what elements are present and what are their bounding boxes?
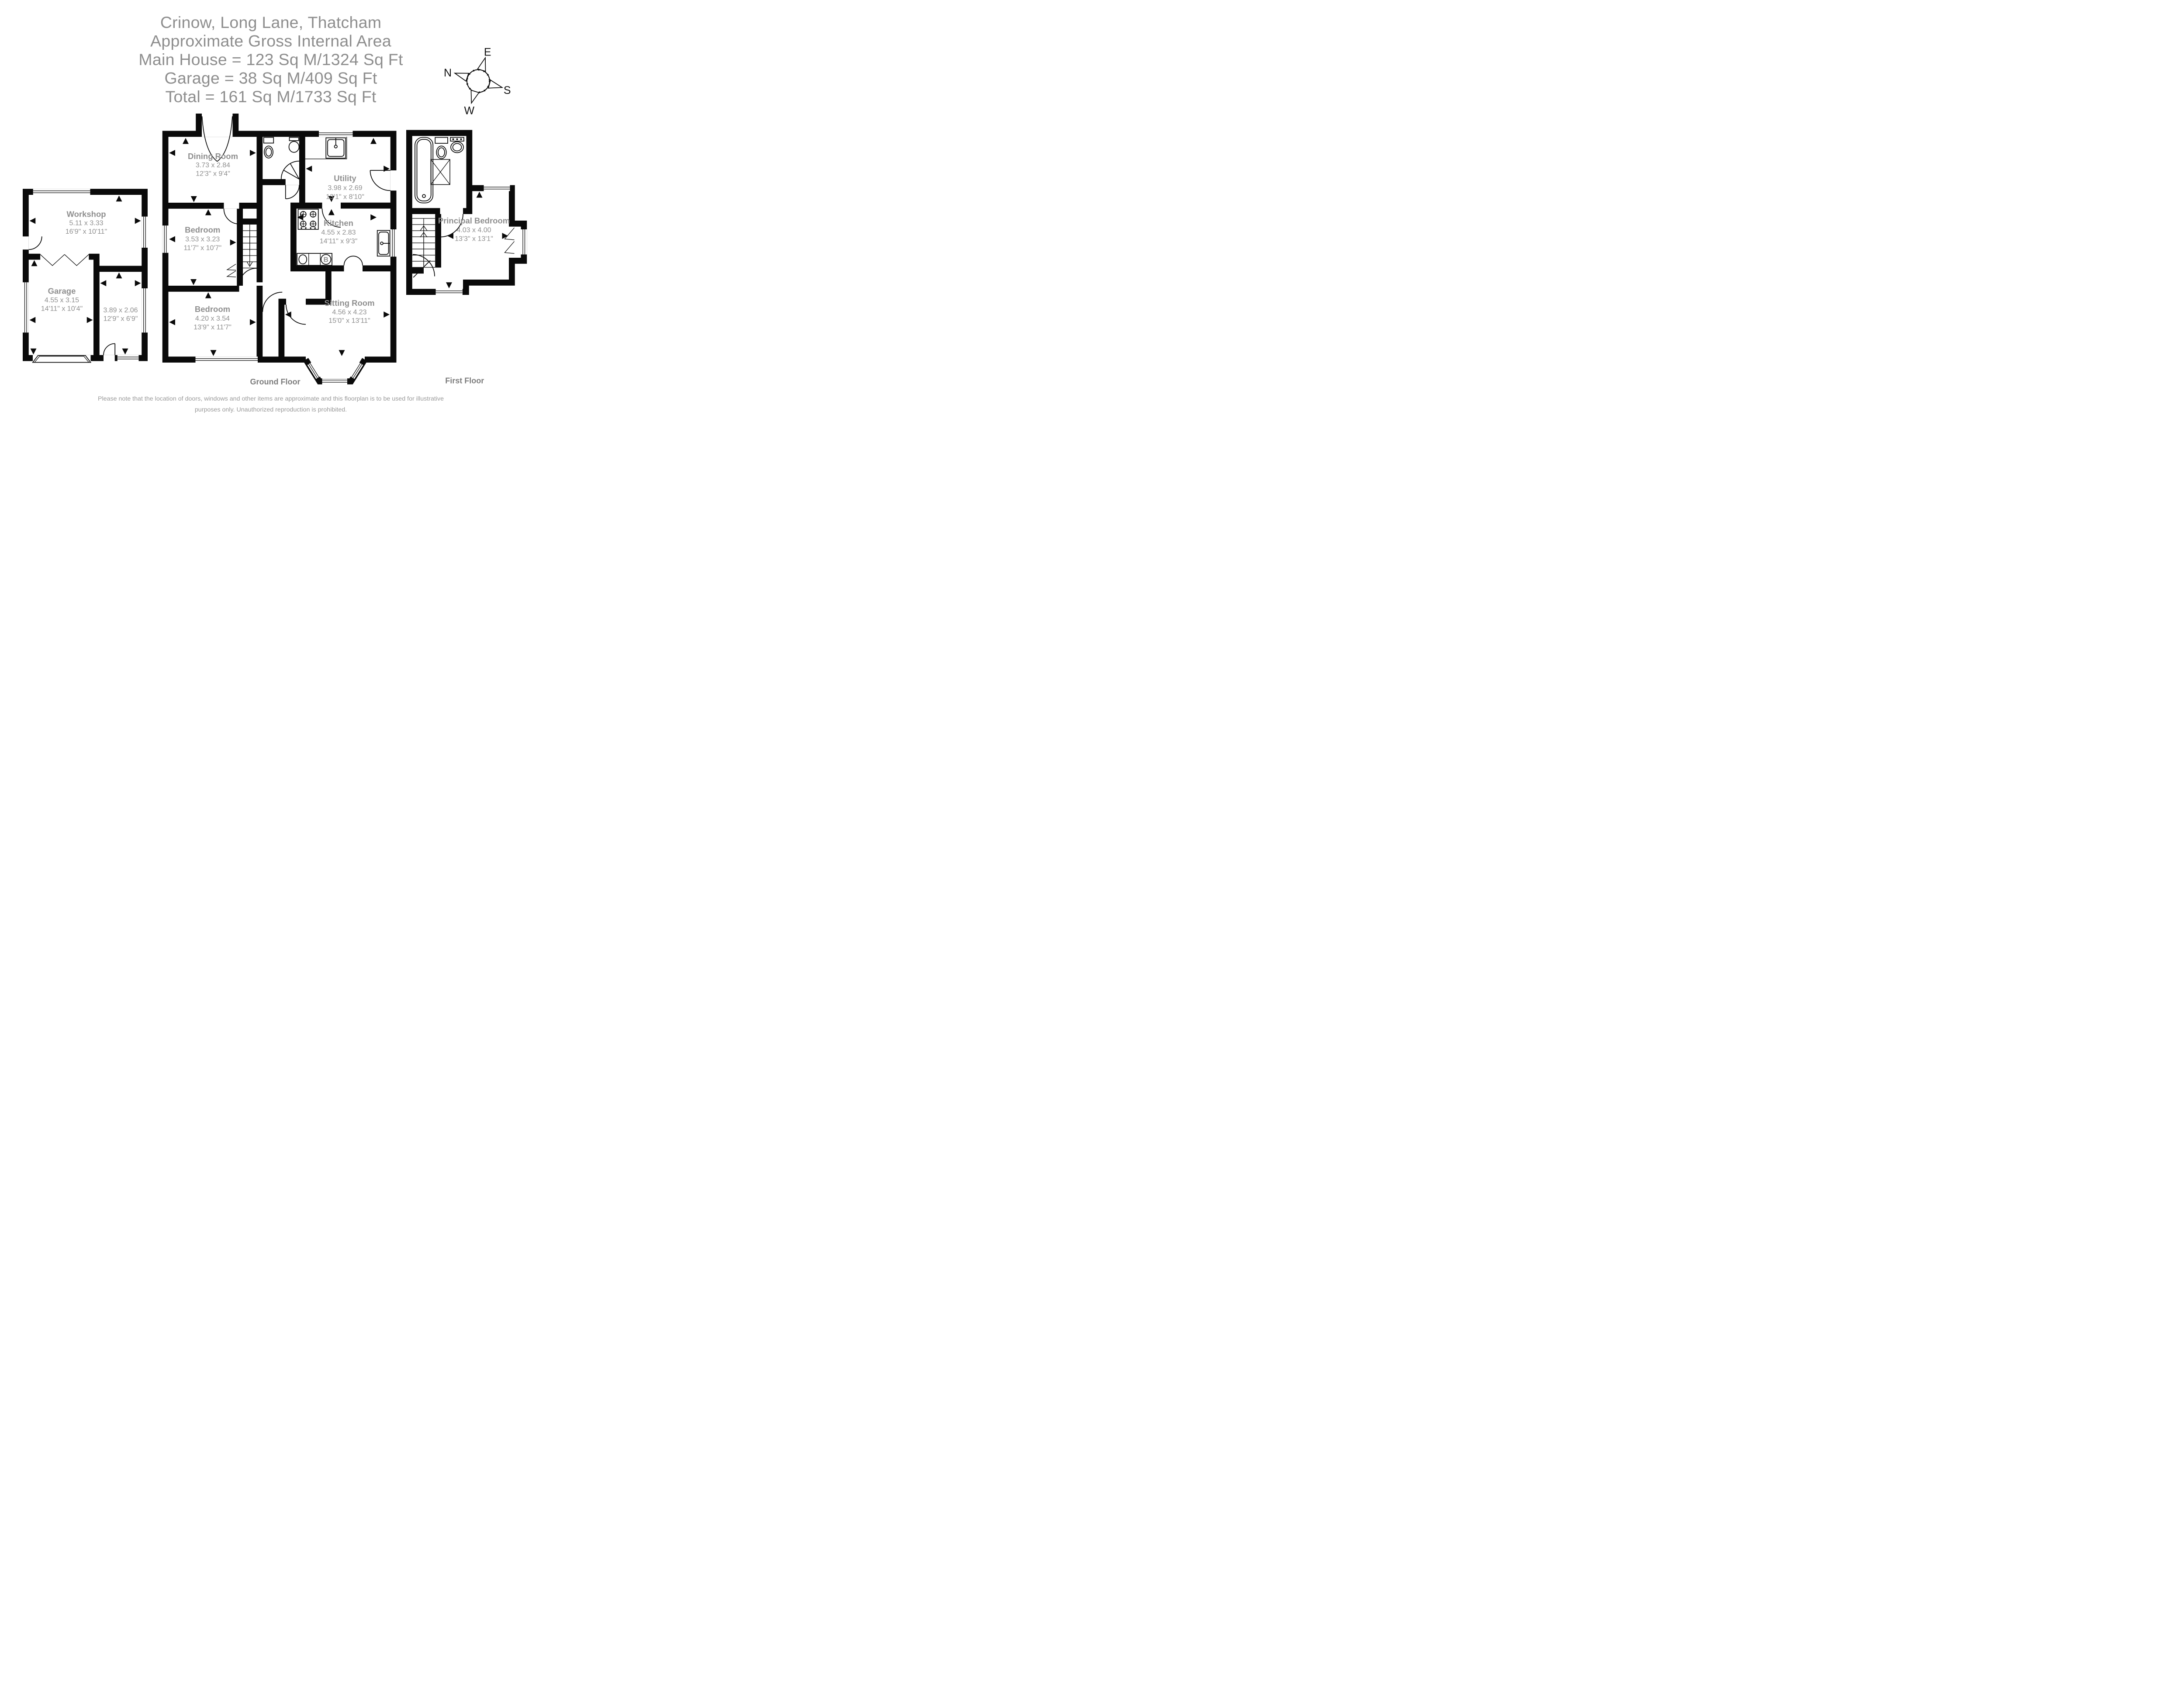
compass-circle (467, 70, 490, 93)
kitchen-metric: 4.55 x 2.83 (321, 229, 356, 236)
kitchen-name: Kitchen (324, 218, 353, 228)
title-address: Crinow, Long Lane, Thatcham (160, 13, 381, 31)
utility-metric: 3.98 x 2.69 (328, 184, 362, 192)
kitchen-imperial: 14'11" x 9'3" (320, 238, 358, 245)
ground-floor-caption: Ground Floor (250, 377, 301, 386)
compass-spike-north (455, 73, 469, 81)
garage-imperial: 14'11" x 10'4" (41, 305, 83, 312)
utility-sink (326, 138, 346, 159)
disclaimer-line2: purposes only. Unauthorized reproduction… (195, 406, 347, 413)
garage-label: Garage 4.55 x 3.15 14'11" x 10'4" (41, 287, 83, 313)
compass-spike-east (478, 58, 486, 71)
workshop-name: Workshop (66, 209, 106, 218)
kitchen-cupboards: B (297, 253, 332, 266)
kitchen-label: Kitchen 4.55 x 2.83 14'11" x 9'3" (320, 218, 358, 245)
store-metric: 3.89 x 2.06 (103, 307, 138, 314)
principal-bedroom-metric: 4.03 x 4.00 (456, 226, 491, 234)
bedroom-front-name: Bedroom (195, 304, 230, 314)
bay-window (306, 360, 365, 384)
floorplan-svg: Crinow, Long Lane, Thatcham Approximate … (0, 0, 546, 422)
boiler-label: B (324, 256, 328, 264)
bedroom-front-metric: 4.20 x 3.54 (195, 315, 230, 322)
bathroom-toilet (435, 138, 448, 159)
title-block: Crinow, Long Lane, Thatcham Approximate … (138, 13, 403, 106)
workshop-label: Workshop 5.11 x 3.33 16'9" x 10'11" (66, 209, 107, 235)
bedroom-front-imperial: 13'9" x 11'7" (194, 324, 232, 331)
utility-imperial: 13'1" x 8'10" (326, 194, 364, 201)
principal-bedroom-label: Principal Bedroom 4.03 x 4.00 13'3" x 13… (438, 216, 510, 242)
dimension-arrows-garage-block (30, 196, 141, 355)
bathroom-basin (450, 138, 464, 153)
utility-name: Utility (334, 174, 356, 183)
wardrobe-chevrons (227, 264, 236, 277)
store-label: 3.89 x 2.06 12'9" x 6'9" (103, 307, 138, 322)
shower-tray (431, 159, 450, 185)
wc-corner-shower (281, 161, 299, 179)
cylinder-cupboard (299, 255, 307, 264)
store-door-arc (104, 344, 115, 355)
bathtub (415, 138, 433, 203)
utility-label: Utility 3.98 x 2.69 13'1" x 8'10" (326, 174, 364, 201)
compass-spike-south (488, 80, 502, 88)
kitchen-sink (377, 231, 390, 256)
store-imperial: 12'9" x 6'9" (104, 315, 138, 322)
sitting-room-label: Sitting Room 4.56 x 4.23 15'0" x 13'11" (324, 298, 374, 325)
first-floor-plan: Principal Bedroom 4.03 x 4.00 13'3" x 13… (406, 130, 527, 295)
disclaimer-block: Please note that the location of doors, … (98, 395, 444, 413)
bedroom-middle-metric: 3.53 x 3.23 (185, 236, 220, 243)
principal-bedroom-imperial: 13'3" x 13'1" (455, 235, 493, 242)
bedroom-front-label: Bedroom 4.20 x 3.54 13'9" x 11'7" (194, 304, 232, 331)
alcove-chevron-doors (505, 228, 515, 253)
garage-name: Garage (48, 287, 76, 296)
dining-room-label: Dining Room 3.73 x 2.84 12'3" x 9'4" (188, 152, 238, 178)
workshop-side-door-arc (29, 236, 42, 249)
workshop-metric: 5.11 x 3.33 (69, 220, 104, 227)
compass-label-s: S (504, 84, 511, 97)
bedroom-middle-label: Bedroom 3.53 x 3.23 11'7" x 10'7" (183, 225, 221, 252)
sitting-room-imperial: 15'0" x 13'11" (328, 317, 370, 325)
dining-room-name: Dining Room (188, 152, 238, 161)
dining-room-imperial: 12'3" x 9'4" (196, 170, 230, 177)
garage-block-plan: Workshop 5.11 x 3.33 16'9" x 10'11" Gara… (23, 189, 148, 362)
principal-bedroom-name: Principal Bedroom (438, 216, 510, 225)
title-total: Total = 161 Sq M/1733 Sq Ft (165, 87, 376, 106)
compass-label-n: N (444, 67, 452, 79)
bedroom-middle-imperial: 11'7" x 10'7" (183, 245, 221, 252)
compass-label-w: W (464, 104, 474, 117)
title-garage: Garage = 38 Sq M/409 Sq Ft (165, 69, 377, 87)
compass-spike-west (471, 90, 479, 104)
bedroom-middle-name: Bedroom (185, 225, 220, 235)
title-main-house: Main House = 123 Sq M/1324 Sq Ft (138, 50, 403, 69)
dining-room-metric: 3.73 x 2.84 (196, 162, 230, 169)
compass-label-e: E (484, 46, 491, 59)
stairs-first (412, 218, 435, 268)
title-subtitle: Approximate Gross Internal Area (150, 31, 391, 50)
first-floor-caption: First Floor (445, 377, 484, 385)
sitting-room-name: Sitting Room (324, 298, 374, 308)
workshop-imperial: 16'9" x 10'11" (66, 228, 107, 235)
wc-toilet (264, 138, 274, 158)
floorplan-page: Crinow, Long Lane, Thatcham Approximate … (0, 0, 546, 422)
ground-floor-plan: B (162, 114, 397, 384)
disclaimer-line1: Please note that the location of doors, … (98, 395, 444, 402)
sitting-room-metric: 4.56 x 4.23 (332, 309, 366, 316)
compass-rose: E N S W (444, 46, 511, 117)
wc-basin (289, 138, 299, 152)
stairs-ground (243, 225, 257, 268)
garage-metric: 4.55 x 3.15 (45, 297, 79, 304)
